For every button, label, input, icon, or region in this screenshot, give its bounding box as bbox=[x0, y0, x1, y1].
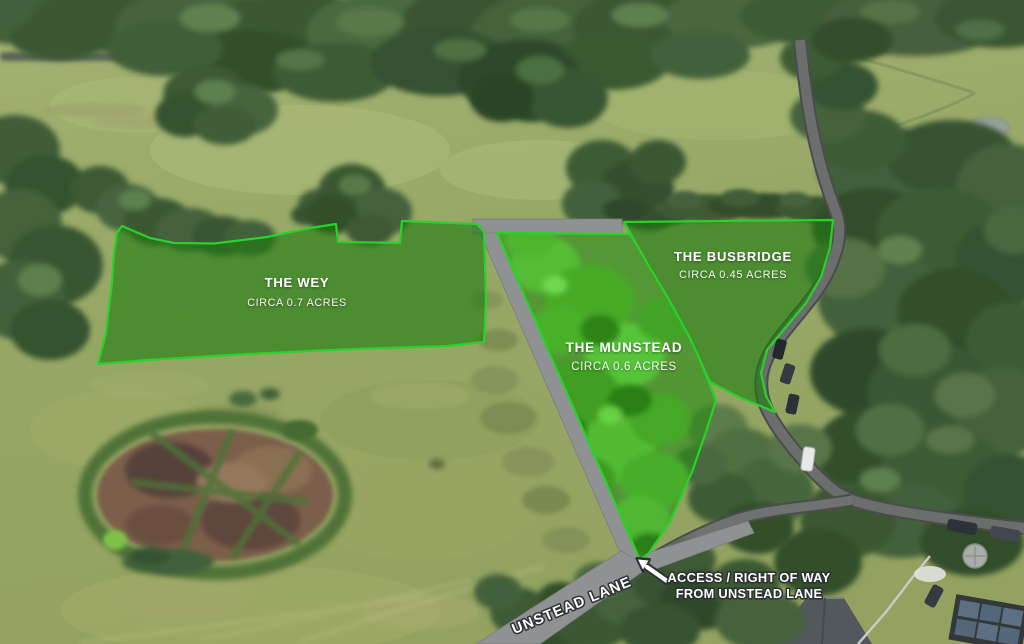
aerial-photo: THE WEY CIRCA 0.7 ACRES THE MUNSTEAD CIR… bbox=[0, 0, 1024, 644]
bare-ground-patch bbox=[85, 417, 345, 573]
plot-label-munstead-area: CIRCA 0.6 ACRES bbox=[571, 361, 677, 373]
access-note-line1: ACCESS / RIGHT OF WAY bbox=[668, 570, 831, 585]
plot-label-wey-area: CIRCA 0.7 ACRES bbox=[247, 297, 347, 309]
aerial-site-plan: THE WEY CIRCA 0.7 ACRES THE MUNSTEAD CIR… bbox=[0, 0, 1024, 644]
access-note-line2: FROM UNSTEAD LANE bbox=[676, 586, 823, 601]
plot-label-wey-name: THE WEY bbox=[265, 275, 330, 290]
lane-top-segment bbox=[473, 219, 622, 234]
satellite-dish bbox=[963, 544, 987, 568]
plot-label-busbridge-area: CIRCA 0.45 ACRES bbox=[679, 269, 787, 281]
plot-boundary-wey bbox=[98, 221, 486, 364]
plot-the-wey: THE WEY CIRCA 0.7 ACRES bbox=[98, 221, 486, 364]
plot-label-busbridge-name: THE BUSBRIDGE bbox=[674, 249, 792, 264]
plot-label-munstead-name: THE MUNSTEAD bbox=[566, 340, 683, 355]
white-tarp bbox=[914, 566, 946, 582]
